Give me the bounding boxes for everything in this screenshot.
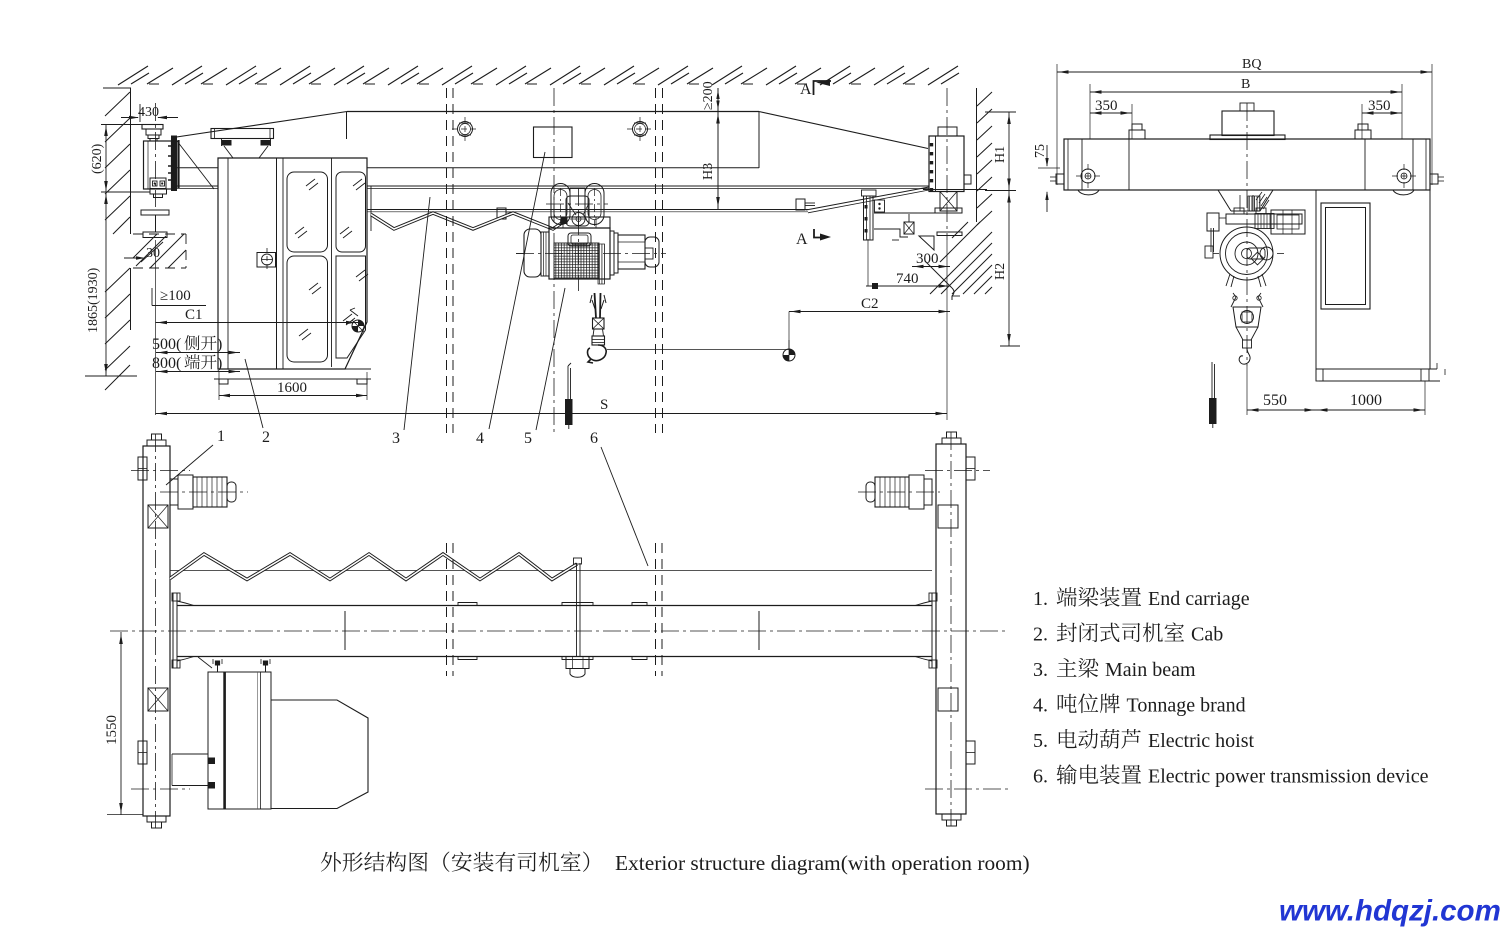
svg-text:A: A (796, 231, 808, 248)
svg-text:≥100: ≥100 (160, 288, 191, 304)
svg-text:2: 2 (262, 429, 270, 446)
svg-text:1550: 1550 (104, 715, 120, 745)
svg-text:1: 1 (217, 428, 225, 445)
svg-text:500(: 500( (152, 336, 181, 353)
svg-text:2.: 2. (1033, 624, 1048, 646)
svg-text:End carriage: End carriage (1148, 588, 1250, 610)
svg-text:BQ: BQ (1242, 57, 1261, 72)
svg-text:Cab: Cab (1191, 624, 1223, 646)
svg-text:5: 5 (524, 430, 532, 447)
svg-text:A: A (800, 81, 812, 98)
svg-text:1000: 1000 (1350, 392, 1382, 409)
svg-text:5.: 5. (1033, 730, 1048, 752)
svg-text:Main beam: Main beam (1105, 659, 1196, 681)
svg-text:300: 300 (916, 251, 939, 267)
svg-text:www.hdqzj.com: www.hdqzj.com (1279, 895, 1501, 928)
svg-text:C1: C1 (185, 307, 203, 323)
svg-text:): ) (217, 336, 222, 353)
svg-text:740: 740 (896, 271, 919, 287)
svg-text:(620): (620) (90, 143, 105, 174)
svg-text:B: B (1241, 77, 1250, 92)
svg-text:Electric hoist: Electric hoist (1148, 730, 1255, 752)
svg-text:4.: 4. (1033, 695, 1048, 717)
svg-text:30: 30 (146, 246, 160, 261)
svg-text:≥200: ≥200 (701, 81, 716, 110)
svg-text:3.: 3. (1033, 659, 1048, 681)
svg-text:): ) (217, 355, 222, 372)
svg-text:1600: 1600 (277, 380, 307, 396)
svg-text:1.: 1. (1033, 588, 1048, 610)
svg-text:550: 550 (1263, 392, 1287, 409)
svg-text:H2: H2 (993, 263, 1008, 280)
svg-text:Tonnage brand: Tonnage brand (1127, 695, 1246, 717)
svg-text:Exterior structure diagram(wit: Exterior structure diagram(with operatio… (615, 851, 1030, 875)
svg-text:3: 3 (392, 430, 400, 447)
svg-text:6: 6 (590, 430, 598, 447)
svg-text:6.: 6. (1033, 766, 1048, 788)
svg-text:350: 350 (1095, 98, 1118, 114)
svg-text:H3: H3 (701, 163, 716, 180)
svg-text:800(: 800( (152, 355, 181, 372)
svg-text:75: 75 (1033, 144, 1048, 158)
svg-text:C2: C2 (861, 296, 879, 312)
svg-text:4: 4 (476, 430, 484, 447)
svg-text:Electric power transmission de: Electric power transmission device (1148, 766, 1429, 788)
svg-text:H1: H1 (993, 146, 1008, 163)
svg-text:S: S (600, 397, 608, 413)
svg-text:1865(1930): 1865(1930) (86, 267, 101, 333)
